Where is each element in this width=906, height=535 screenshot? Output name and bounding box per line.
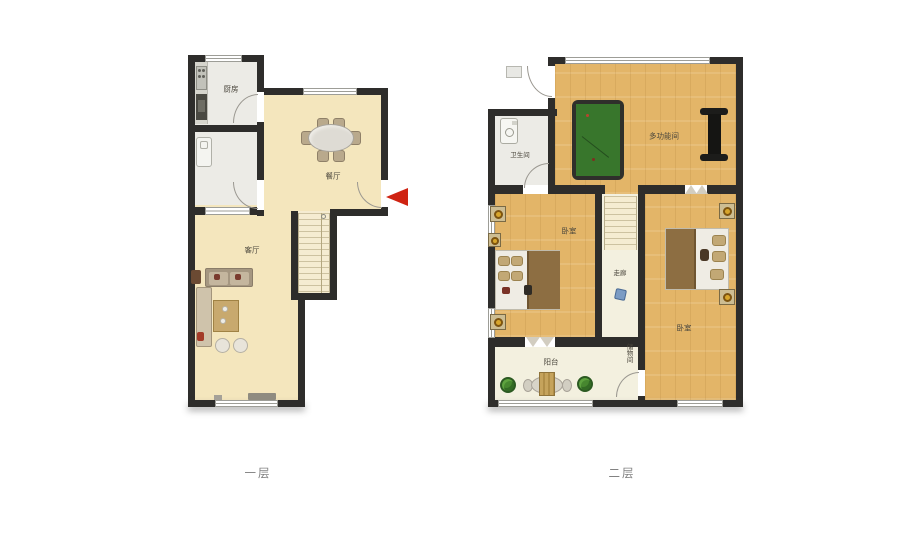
bed-blanket <box>666 229 696 289</box>
storage-room-label: 储物间 <box>624 343 634 363</box>
pillow <box>511 271 523 281</box>
pillow <box>710 269 724 280</box>
bed-item <box>524 285 532 295</box>
treadmill-base <box>700 154 728 161</box>
nightstand <box>490 206 506 222</box>
wall <box>736 57 743 407</box>
stairs <box>604 196 637 250</box>
accent-pillow <box>502 287 510 294</box>
pool-ball <box>592 158 595 161</box>
plant <box>577 376 593 392</box>
bedroom-left-room-label: 卧室 <box>562 226 577 237</box>
wall <box>548 57 555 66</box>
balcony-room-label: 阳台 <box>544 357 559 368</box>
wall <box>488 109 557 116</box>
bed <box>665 228 729 290</box>
bed <box>495 250 560 310</box>
wall <box>548 185 605 194</box>
window <box>677 400 723 407</box>
pillow <box>712 235 726 246</box>
nightstand <box>719 289 735 305</box>
pillow <box>498 256 510 266</box>
nightstand <box>719 203 735 219</box>
wall <box>488 109 495 407</box>
window <box>565 57 710 64</box>
bathroom-room-label: 卫生间 <box>510 149 530 159</box>
double-door-mark <box>526 337 540 347</box>
bed-item <box>700 249 709 261</box>
bed-blanket <box>527 251 560 309</box>
corridor-room-label: 走廊 <box>614 267 627 277</box>
nightstand <box>490 314 506 330</box>
pool-felt <box>576 104 620 176</box>
double-door-mark <box>540 337 554 347</box>
wall <box>638 185 685 194</box>
multi-room-label: 多功能间 <box>649 131 679 142</box>
wall <box>638 396 645 400</box>
wall <box>707 185 736 194</box>
double-door-mark <box>696 185 708 194</box>
window <box>498 400 593 407</box>
pool-cue <box>582 136 609 158</box>
corridor-decor <box>614 288 627 301</box>
nightstand <box>488 233 501 247</box>
pillow <box>511 256 523 266</box>
balcony-chair <box>562 379 572 392</box>
floorplan-canvas: 厨房 餐厅 客厅 一层 <box>0 0 906 535</box>
wall <box>488 185 523 194</box>
wall <box>548 98 555 194</box>
bedroom-right-room-label: 卧室 <box>677 323 692 334</box>
washer-panel <box>512 121 517 125</box>
ac-unit <box>506 66 522 78</box>
plant <box>500 377 516 393</box>
pillow <box>498 271 510 281</box>
pool-ball <box>586 114 589 117</box>
pool-table <box>572 100 624 180</box>
storage-door <box>638 370 645 396</box>
washing-machine <box>500 118 518 144</box>
washer-door <box>505 128 514 137</box>
floor2-plan: 卫生间 多功能间 卧室 卧室 走廊 储物间 阳台 二层 <box>0 0 906 535</box>
wall <box>488 337 525 347</box>
pillow <box>712 251 726 262</box>
terrace-door-arc <box>527 66 552 97</box>
floor2-name-label: 二层 <box>609 465 636 481</box>
treadmill <box>700 106 730 164</box>
table-mat <box>539 372 555 396</box>
treadmill-belt <box>708 114 721 156</box>
wall <box>595 194 602 340</box>
